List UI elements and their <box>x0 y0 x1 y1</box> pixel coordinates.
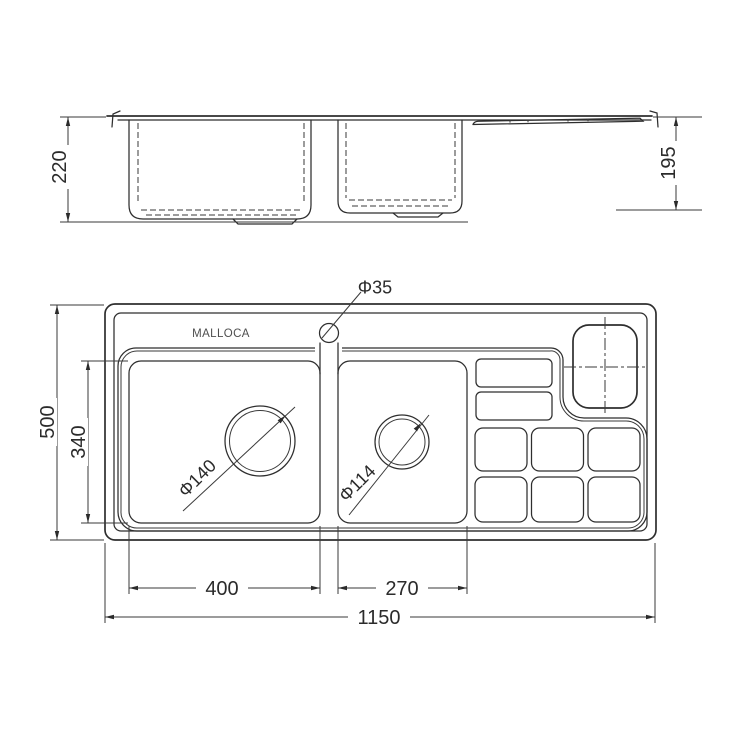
dim-label-500: 500 <box>37 405 59 438</box>
label-drain-left: Φ140 <box>174 455 220 501</box>
dim-right-bowl-width: 270 <box>338 526 467 600</box>
basin-area-outline <box>118 348 647 531</box>
right-bowl-section-outline <box>338 120 462 213</box>
dim-left-drain-diameter: Φ140 <box>174 407 295 511</box>
sink-rim-inner-edge <box>114 313 647 531</box>
dim-left-bowl-width: 400 <box>129 526 320 600</box>
basin-area-inner-line <box>121 351 644 528</box>
dim-label-400: 400 <box>205 578 238 600</box>
drainboard-emboss-pattern <box>475 359 640 522</box>
right-bowl-outline <box>338 361 467 523</box>
dim-label-1150: 1150 <box>357 607 400 629</box>
dim-side-total-height: 220 <box>49 117 106 222</box>
dim-label-270: 270 <box>385 578 418 600</box>
rim-right-edge <box>650 111 658 127</box>
emboss-square <box>532 428 584 471</box>
emboss-square <box>588 428 640 471</box>
dim-label-195: 195 <box>658 146 680 179</box>
brand-label: MALLOCA <box>192 328 250 340</box>
rim-left-edge <box>112 111 120 127</box>
emboss-bar <box>476 359 552 387</box>
emboss-square <box>475 477 527 522</box>
emboss-square <box>532 477 584 522</box>
faucet-hole <box>320 324 339 343</box>
dim-label-220: 220 <box>49 150 71 183</box>
faucet-leader-line <box>322 292 361 338</box>
emboss-square <box>475 428 527 471</box>
emboss-bar <box>476 392 552 420</box>
dim-plan-bowl-depth: 340 <box>68 361 128 523</box>
left-bowl-section-outline <box>129 120 311 219</box>
plan-view: Φ140 Φ114 Φ35 MALLOCA <box>37 277 656 629</box>
dim-label-340: 340 <box>68 425 90 458</box>
side-view: 220 195 <box>49 111 702 224</box>
label-faucet-hole: Φ35 <box>358 277 392 297</box>
dim-side-right-depth: 195 <box>616 117 702 210</box>
emboss-square <box>588 477 640 522</box>
drawing-canvas: 220 195 <box>0 0 750 750</box>
drainboard-section <box>473 118 643 124</box>
label-drain-right: Φ114 <box>335 461 380 506</box>
sink-technical-drawing: 220 195 <box>0 0 750 750</box>
